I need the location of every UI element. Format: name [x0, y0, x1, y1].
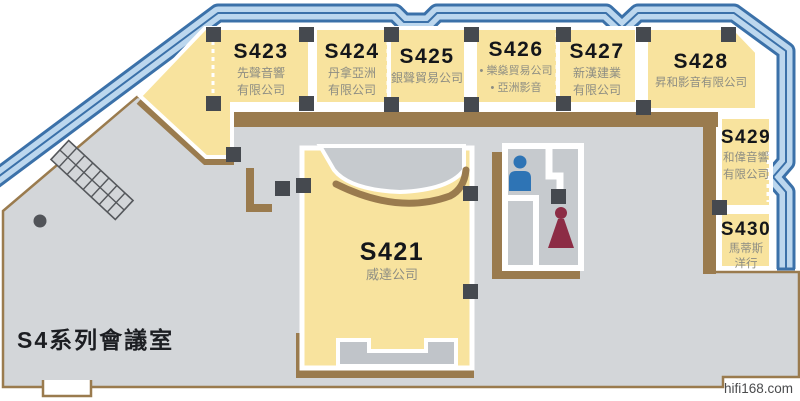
booth-s430-name2: 洋行: [735, 256, 758, 270]
booth-s429-label: S429: [721, 127, 771, 148]
booth-s427-label: S427: [569, 40, 624, 63]
booth-s424-name2: 有限公司: [328, 83, 376, 97]
area-title: S4系列會議室: [17, 327, 174, 353]
booth-s426-name2: • 亞洲影音: [491, 80, 542, 94]
booth-s421-name1: 威達公司: [366, 267, 418, 282]
round-pillar: [34, 215, 47, 228]
booth-s429-name1: 和偉音響: [723, 150, 769, 164]
pillar: [551, 189, 566, 204]
booth-s423-name1: 先聲音響: [237, 65, 285, 80]
booth-s423-label: S423: [233, 40, 288, 63]
booth-s429-name2: 有限公司: [723, 167, 769, 181]
booth-s427-name2: 有限公司: [573, 83, 621, 97]
door-notch: [43, 380, 91, 396]
booth-s427-name1: 新漢建業: [573, 65, 621, 80]
booth-s430-name1: 馬蒂斯: [729, 242, 764, 255]
booth-s428-name1: 昇和影音有限公司: [655, 75, 747, 89]
booth-s424-label: S424: [324, 40, 379, 63]
booth-s424-name1: 丹拿亞洲: [328, 65, 376, 80]
booth-s430-label: S430: [721, 219, 771, 240]
restroom: [492, 143, 584, 279]
booth-s426-name1: • 樂燊貿易公司: [480, 63, 553, 77]
booth-s425-label: S425: [399, 45, 454, 68]
floorplan: S423 先聲音響 有限公司 S424 丹拿亞洲 有限公司 S425 銀聲貿易公…: [0, 0, 800, 401]
booth-s421-label: S421: [360, 238, 424, 266]
booth-s426-label: S426: [488, 38, 543, 61]
booth-s423-name2: 有限公司: [237, 83, 285, 97]
booth-s428-label: S428: [673, 50, 728, 73]
booth-s425-name1: 銀聲貿易公司: [391, 70, 463, 85]
watermark: hifi168.com: [724, 381, 793, 396]
